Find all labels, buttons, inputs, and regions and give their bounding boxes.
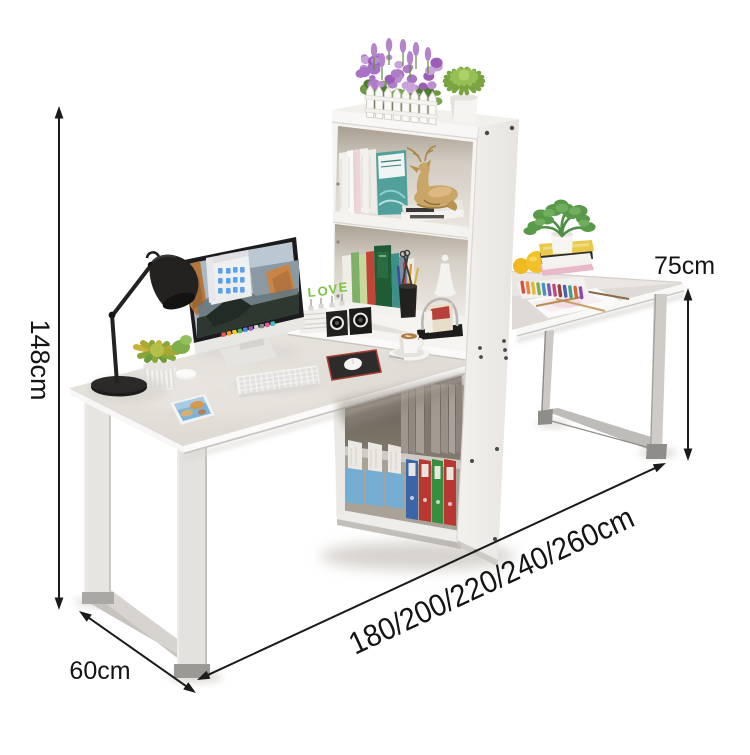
svg-text:E: E bbox=[338, 279, 348, 295]
svg-text:O: O bbox=[317, 283, 328, 299]
svg-text:60cm: 60cm bbox=[69, 657, 130, 685]
svg-text:148cm: 148cm bbox=[25, 319, 55, 400]
svg-text:75cm: 75cm bbox=[654, 252, 715, 280]
svg-text:V: V bbox=[328, 281, 338, 297]
svg-text:L: L bbox=[307, 284, 316, 300]
